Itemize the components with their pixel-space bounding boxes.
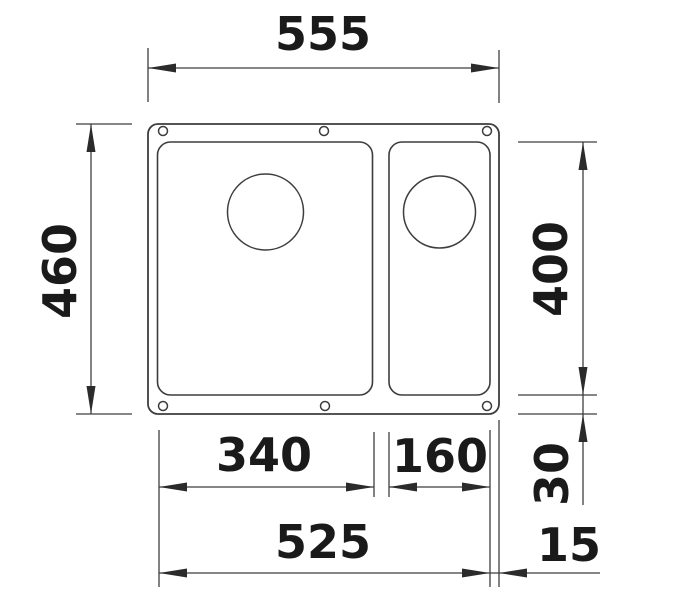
mounting-hole — [321, 402, 330, 411]
mounting-hole — [159, 127, 168, 136]
overall-width-label: 555 — [275, 11, 371, 57]
dim-side-offset — [499, 569, 527, 578]
main-bowl — [158, 142, 373, 395]
side-offset-label: 15 — [537, 522, 601, 568]
bowl-length-label: 400 — [528, 221, 574, 317]
main-bowl-width-label: 340 — [216, 432, 312, 478]
mounting-hole — [483, 402, 492, 411]
side-bowl-width-label: 160 — [392, 433, 488, 479]
side-bowl — [389, 142, 490, 395]
sink-dimension-drawing: 555 460 400 340 160 525 30 15 — [0, 0, 683, 600]
drawing-canvas — [0, 0, 683, 600]
mounting-hole — [483, 127, 492, 136]
side-bowl-drain-hole — [404, 176, 476, 248]
overall-depth-label: 460 — [37, 223, 83, 319]
dim-rear-offset — [579, 414, 588, 442]
sink-outline — [148, 124, 499, 414]
bowls-total-width-label: 525 — [275, 519, 371, 565]
mounting-hole — [320, 127, 329, 136]
mounting-hole — [159, 402, 168, 411]
main-bowl-drain-hole — [228, 174, 304, 250]
rear-offset-label: 30 — [529, 442, 575, 506]
